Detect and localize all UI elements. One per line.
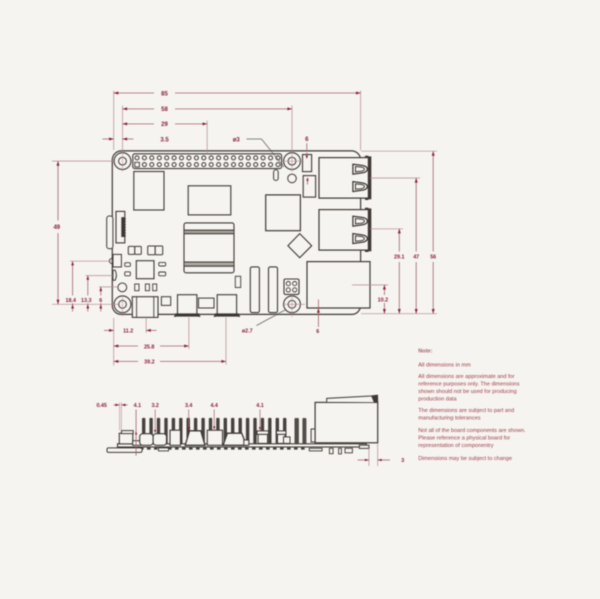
svg-text:85: 85 [161, 91, 168, 97]
svg-text:3: 3 [401, 458, 404, 464]
svg-text:production data: production data [418, 396, 457, 402]
svg-text:39.2: 39.2 [144, 360, 155, 366]
svg-text:25.8: 25.8 [144, 344, 155, 350]
svg-text:4.1: 4.1 [256, 403, 264, 409]
svg-text:The dimensions are subject to: The dimensions are subject to part and [418, 408, 514, 414]
svg-text:Dimensions may be subject to c: Dimensions may be subject to change [418, 456, 512, 462]
svg-text:4.1: 4.1 [134, 403, 142, 409]
svg-text:6: 6 [316, 329, 319, 335]
svg-text:All dimensions in mm: All dimensions in mm [418, 363, 471, 369]
svg-text:29: 29 [161, 122, 168, 128]
svg-text:56: 56 [430, 255, 436, 261]
svg-text:All dimensions are approximate: All dimensions are approximate and for [418, 374, 514, 380]
svg-text:4.4: 4.4 [210, 403, 218, 409]
svg-text:29.1: 29.1 [394, 255, 405, 261]
svg-text:Please reference a physical bo: Please reference a physical board for [418, 436, 510, 442]
svg-text:reference purposes only. The d: reference purposes only. The dimensions [418, 381, 519, 387]
svg-text:13.3: 13.3 [81, 298, 92, 304]
svg-text:Note:: Note: [418, 348, 432, 354]
svg-text:11.2: 11.2 [123, 329, 133, 335]
svg-text:10.2: 10.2 [378, 298, 389, 304]
svg-text:3.4: 3.4 [185, 403, 193, 409]
svg-text:ø3: ø3 [233, 137, 241, 143]
svg-text:manufacturing tolerances: manufacturing tolerances [418, 416, 481, 422]
svg-text:47: 47 [413, 255, 419, 261]
svg-text:representation of componentry: representation of componentry [418, 443, 493, 449]
svg-text:6: 6 [99, 298, 102, 304]
svg-text:shown should not be used for p: shown should not be used for producing [418, 389, 516, 395]
svg-text:3.2: 3.2 [151, 403, 159, 409]
svg-text:ø2.7: ø2.7 [242, 328, 253, 334]
svg-text:18.4: 18.4 [66, 298, 77, 304]
svg-text:3.5: 3.5 [160, 137, 169, 143]
svg-text:Not all of the board component: Not all of the board components are show… [418, 428, 526, 434]
svg-text:58: 58 [161, 107, 168, 113]
svg-text:0.45: 0.45 [96, 403, 107, 409]
svg-text:49: 49 [53, 225, 60, 231]
